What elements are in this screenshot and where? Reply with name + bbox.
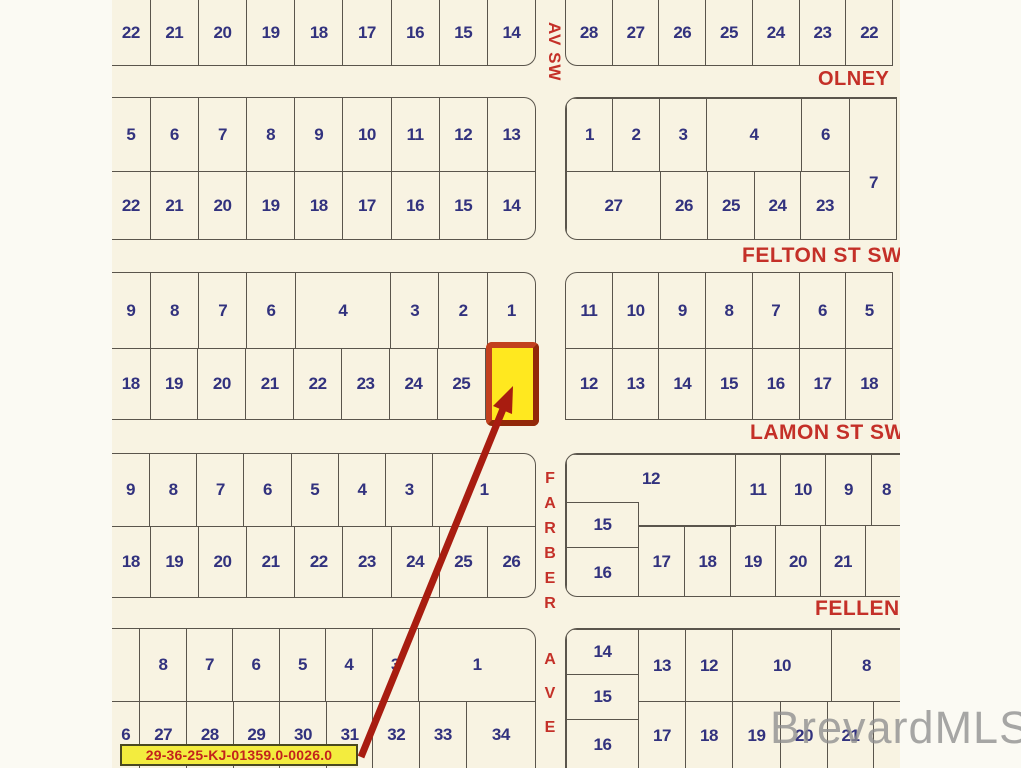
lot-25: 25 bbox=[706, 0, 753, 65]
lot-17: 17 bbox=[343, 0, 391, 65]
lot-28: 28 bbox=[566, 0, 613, 65]
lot-3: 3 bbox=[373, 629, 419, 701]
lot-cell bbox=[865, 525, 900, 597]
lot-9: 9 bbox=[825, 454, 872, 526]
lot-6: 6 bbox=[244, 454, 291, 526]
lot-23: 23 bbox=[800, 0, 847, 65]
lot-12: 12 bbox=[566, 349, 613, 419]
lot-15: 15 bbox=[706, 349, 753, 419]
lot-cell bbox=[638, 502, 736, 527]
lot-4: 4 bbox=[339, 454, 386, 526]
lot-19: 19 bbox=[247, 0, 295, 65]
lot-15: 15 bbox=[566, 502, 639, 548]
lot-13: 13 bbox=[638, 629, 686, 702]
lot-25: 25 bbox=[707, 171, 755, 240]
lot-10: 10 bbox=[780, 454, 826, 526]
lot-12: 12 bbox=[685, 629, 733, 702]
lot-25: 25 bbox=[440, 527, 488, 597]
lot-6: 6 bbox=[247, 273, 295, 348]
street-label-farber: FARBER bbox=[543, 466, 557, 616]
lot-8: 8 bbox=[871, 454, 900, 526]
lot-3: 3 bbox=[391, 273, 439, 348]
lot-19: 19 bbox=[730, 525, 776, 597]
lot-8: 8 bbox=[140, 629, 186, 701]
street-label-av-sw: AV SW bbox=[534, 6, 564, 98]
lot-34: 34 bbox=[467, 702, 535, 768]
lot-18: 18 bbox=[112, 349, 151, 419]
lot-13: 13 bbox=[488, 98, 535, 171]
lot-3: 3 bbox=[659, 98, 707, 172]
lot-16: 16 bbox=[566, 719, 639, 768]
lot-block-r3-east: 11109876512131415161718 bbox=[565, 272, 893, 420]
lot-17: 17 bbox=[638, 701, 686, 768]
lot-11: 11 bbox=[735, 454, 781, 526]
lot-7: 7 bbox=[753, 273, 800, 348]
lot-18: 18 bbox=[295, 0, 343, 65]
lot-23: 23 bbox=[343, 527, 391, 597]
lot-15: 15 bbox=[440, 0, 488, 65]
lot-32: 32 bbox=[373, 702, 420, 768]
plat-map: 2221201918171615142827262524232256789101… bbox=[0, 0, 1021, 768]
lot-5: 5 bbox=[112, 98, 151, 171]
lot-11: 11 bbox=[566, 273, 613, 348]
lot-16: 16 bbox=[753, 349, 800, 419]
lot-7: 7 bbox=[197, 454, 244, 526]
lot-block-r1-west: 222120191817161514 bbox=[112, 0, 536, 66]
lot-20: 20 bbox=[199, 172, 247, 239]
lot-5: 5 bbox=[280, 629, 326, 701]
lot-18: 18 bbox=[846, 349, 892, 419]
lot-block-r2-west: 5678910111213222120191817161514 bbox=[112, 97, 536, 240]
lot-block-r4-west: 98765431181920212223242526 bbox=[112, 453, 536, 598]
lot-6: 6 bbox=[151, 98, 199, 171]
lot-15: 15 bbox=[440, 172, 488, 239]
lot-20: 20 bbox=[775, 525, 821, 597]
lot-5: 5 bbox=[846, 273, 892, 348]
lot-10: 10 bbox=[343, 98, 391, 171]
lot-12: 12 bbox=[566, 454, 736, 503]
lot-19: 19 bbox=[151, 527, 199, 597]
lot-3: 3 bbox=[386, 454, 433, 526]
lot-24: 24 bbox=[754, 171, 801, 240]
lot-8: 8 bbox=[831, 629, 900, 702]
lot-8: 8 bbox=[150, 454, 197, 526]
lot-26: 26 bbox=[660, 171, 708, 240]
lot-27: 27 bbox=[566, 171, 661, 240]
lot-21: 21 bbox=[820, 525, 866, 597]
lot-cell bbox=[112, 629, 140, 701]
lot-22: 22 bbox=[294, 349, 342, 419]
street-label-fellen: FELLEN bbox=[815, 597, 900, 621]
lot-12: 12 bbox=[440, 98, 488, 171]
subject-parcel-highlight bbox=[486, 342, 539, 426]
lot-7: 7 bbox=[199, 98, 247, 171]
lot-23: 23 bbox=[800, 171, 850, 240]
lot-23: 23 bbox=[342, 349, 390, 419]
lot-15: 15 bbox=[566, 674, 639, 720]
lot-22: 22 bbox=[112, 0, 151, 65]
lot-22: 22 bbox=[846, 0, 892, 65]
lot-22: 22 bbox=[295, 527, 343, 597]
street-label-olney: OLNEY bbox=[818, 68, 889, 91]
lot-9: 9 bbox=[659, 273, 706, 348]
lot-16: 16 bbox=[392, 172, 440, 239]
street-label-felton: FELTON ST SW bbox=[742, 244, 900, 268]
lot-22: 22 bbox=[112, 172, 151, 239]
lot-18: 18 bbox=[685, 701, 733, 768]
lot-18: 18 bbox=[112, 527, 151, 597]
lot-21: 21 bbox=[247, 527, 295, 597]
lot-24: 24 bbox=[390, 349, 438, 419]
lot-8: 8 bbox=[151, 273, 199, 348]
lot-33: 33 bbox=[420, 702, 467, 768]
lot-14: 14 bbox=[488, 172, 535, 239]
lot-8: 8 bbox=[247, 98, 295, 171]
lot-9: 9 bbox=[295, 98, 343, 171]
lot-7: 7 bbox=[849, 98, 897, 240]
lot-21: 21 bbox=[151, 172, 199, 239]
lot-6: 6 bbox=[801, 98, 850, 172]
lot-2: 2 bbox=[439, 273, 487, 348]
lot-block-r4-east: 1211109815161718192021 bbox=[565, 453, 900, 597]
lot-16: 16 bbox=[392, 0, 440, 65]
lot-13: 13 bbox=[613, 349, 660, 419]
lot-10: 10 bbox=[732, 629, 832, 702]
lot-6: 6 bbox=[800, 273, 847, 348]
lot-21: 21 bbox=[151, 0, 199, 65]
lot-24: 24 bbox=[753, 0, 800, 65]
lot-26: 26 bbox=[659, 0, 706, 65]
lot-14: 14 bbox=[488, 0, 535, 65]
lot-4: 4 bbox=[296, 273, 392, 348]
map-clip-area: 2221201918171615142827262524232256789101… bbox=[0, 0, 900, 768]
lot-block-r1-east: 28272625242322 bbox=[565, 0, 893, 66]
lot-17: 17 bbox=[800, 349, 847, 419]
lot-5: 5 bbox=[292, 454, 339, 526]
lot-4: 4 bbox=[706, 98, 802, 172]
lot-17: 17 bbox=[343, 172, 391, 239]
parcel-id-label: 29-36-25-KJ-01359.0-0026.0 bbox=[120, 744, 358, 766]
lot-14: 14 bbox=[659, 349, 706, 419]
brevardmls-watermark: BrevardMLS bbox=[770, 702, 1021, 754]
lot-18: 18 bbox=[684, 525, 731, 597]
lot-20: 20 bbox=[199, 527, 247, 597]
street-label-farber-ave: AVE bbox=[543, 643, 557, 745]
lot-9: 9 bbox=[112, 273, 151, 348]
lot-10: 10 bbox=[613, 273, 660, 348]
lot-14: 14 bbox=[566, 629, 639, 675]
lot-21: 21 bbox=[246, 349, 294, 419]
lot-27: 27 bbox=[613, 0, 660, 65]
lot-1: 1 bbox=[433, 454, 535, 526]
lot-19: 19 bbox=[151, 349, 199, 419]
lot-20: 20 bbox=[199, 0, 247, 65]
lot-26: 26 bbox=[488, 527, 535, 597]
lot-1: 1 bbox=[488, 273, 535, 348]
lot-4: 4 bbox=[326, 629, 372, 701]
lot-block-r3-west: 987643211819202122232425 bbox=[112, 272, 536, 420]
lot-18: 18 bbox=[295, 172, 343, 239]
lot-19: 19 bbox=[247, 172, 295, 239]
street-label-lamon: LAMON ST SW bbox=[750, 421, 900, 445]
lot-2: 2 bbox=[612, 98, 660, 172]
lot-1: 1 bbox=[566, 98, 613, 172]
lot-6: 6 bbox=[233, 629, 279, 701]
lot-16: 16 bbox=[566, 547, 639, 597]
lot-20: 20 bbox=[198, 349, 246, 419]
lot-11: 11 bbox=[392, 98, 440, 171]
lot-1: 1 bbox=[419, 629, 535, 701]
lot-block-r2-east: 1234672726252423 bbox=[565, 97, 897, 240]
lot-24: 24 bbox=[392, 527, 440, 597]
lot-9: 9 bbox=[112, 454, 150, 526]
lot-7: 7 bbox=[187, 629, 233, 701]
lot-25: 25 bbox=[438, 349, 486, 419]
lot-17: 17 bbox=[638, 525, 685, 597]
lot-7: 7 bbox=[199, 273, 247, 348]
lot-8: 8 bbox=[706, 273, 753, 348]
